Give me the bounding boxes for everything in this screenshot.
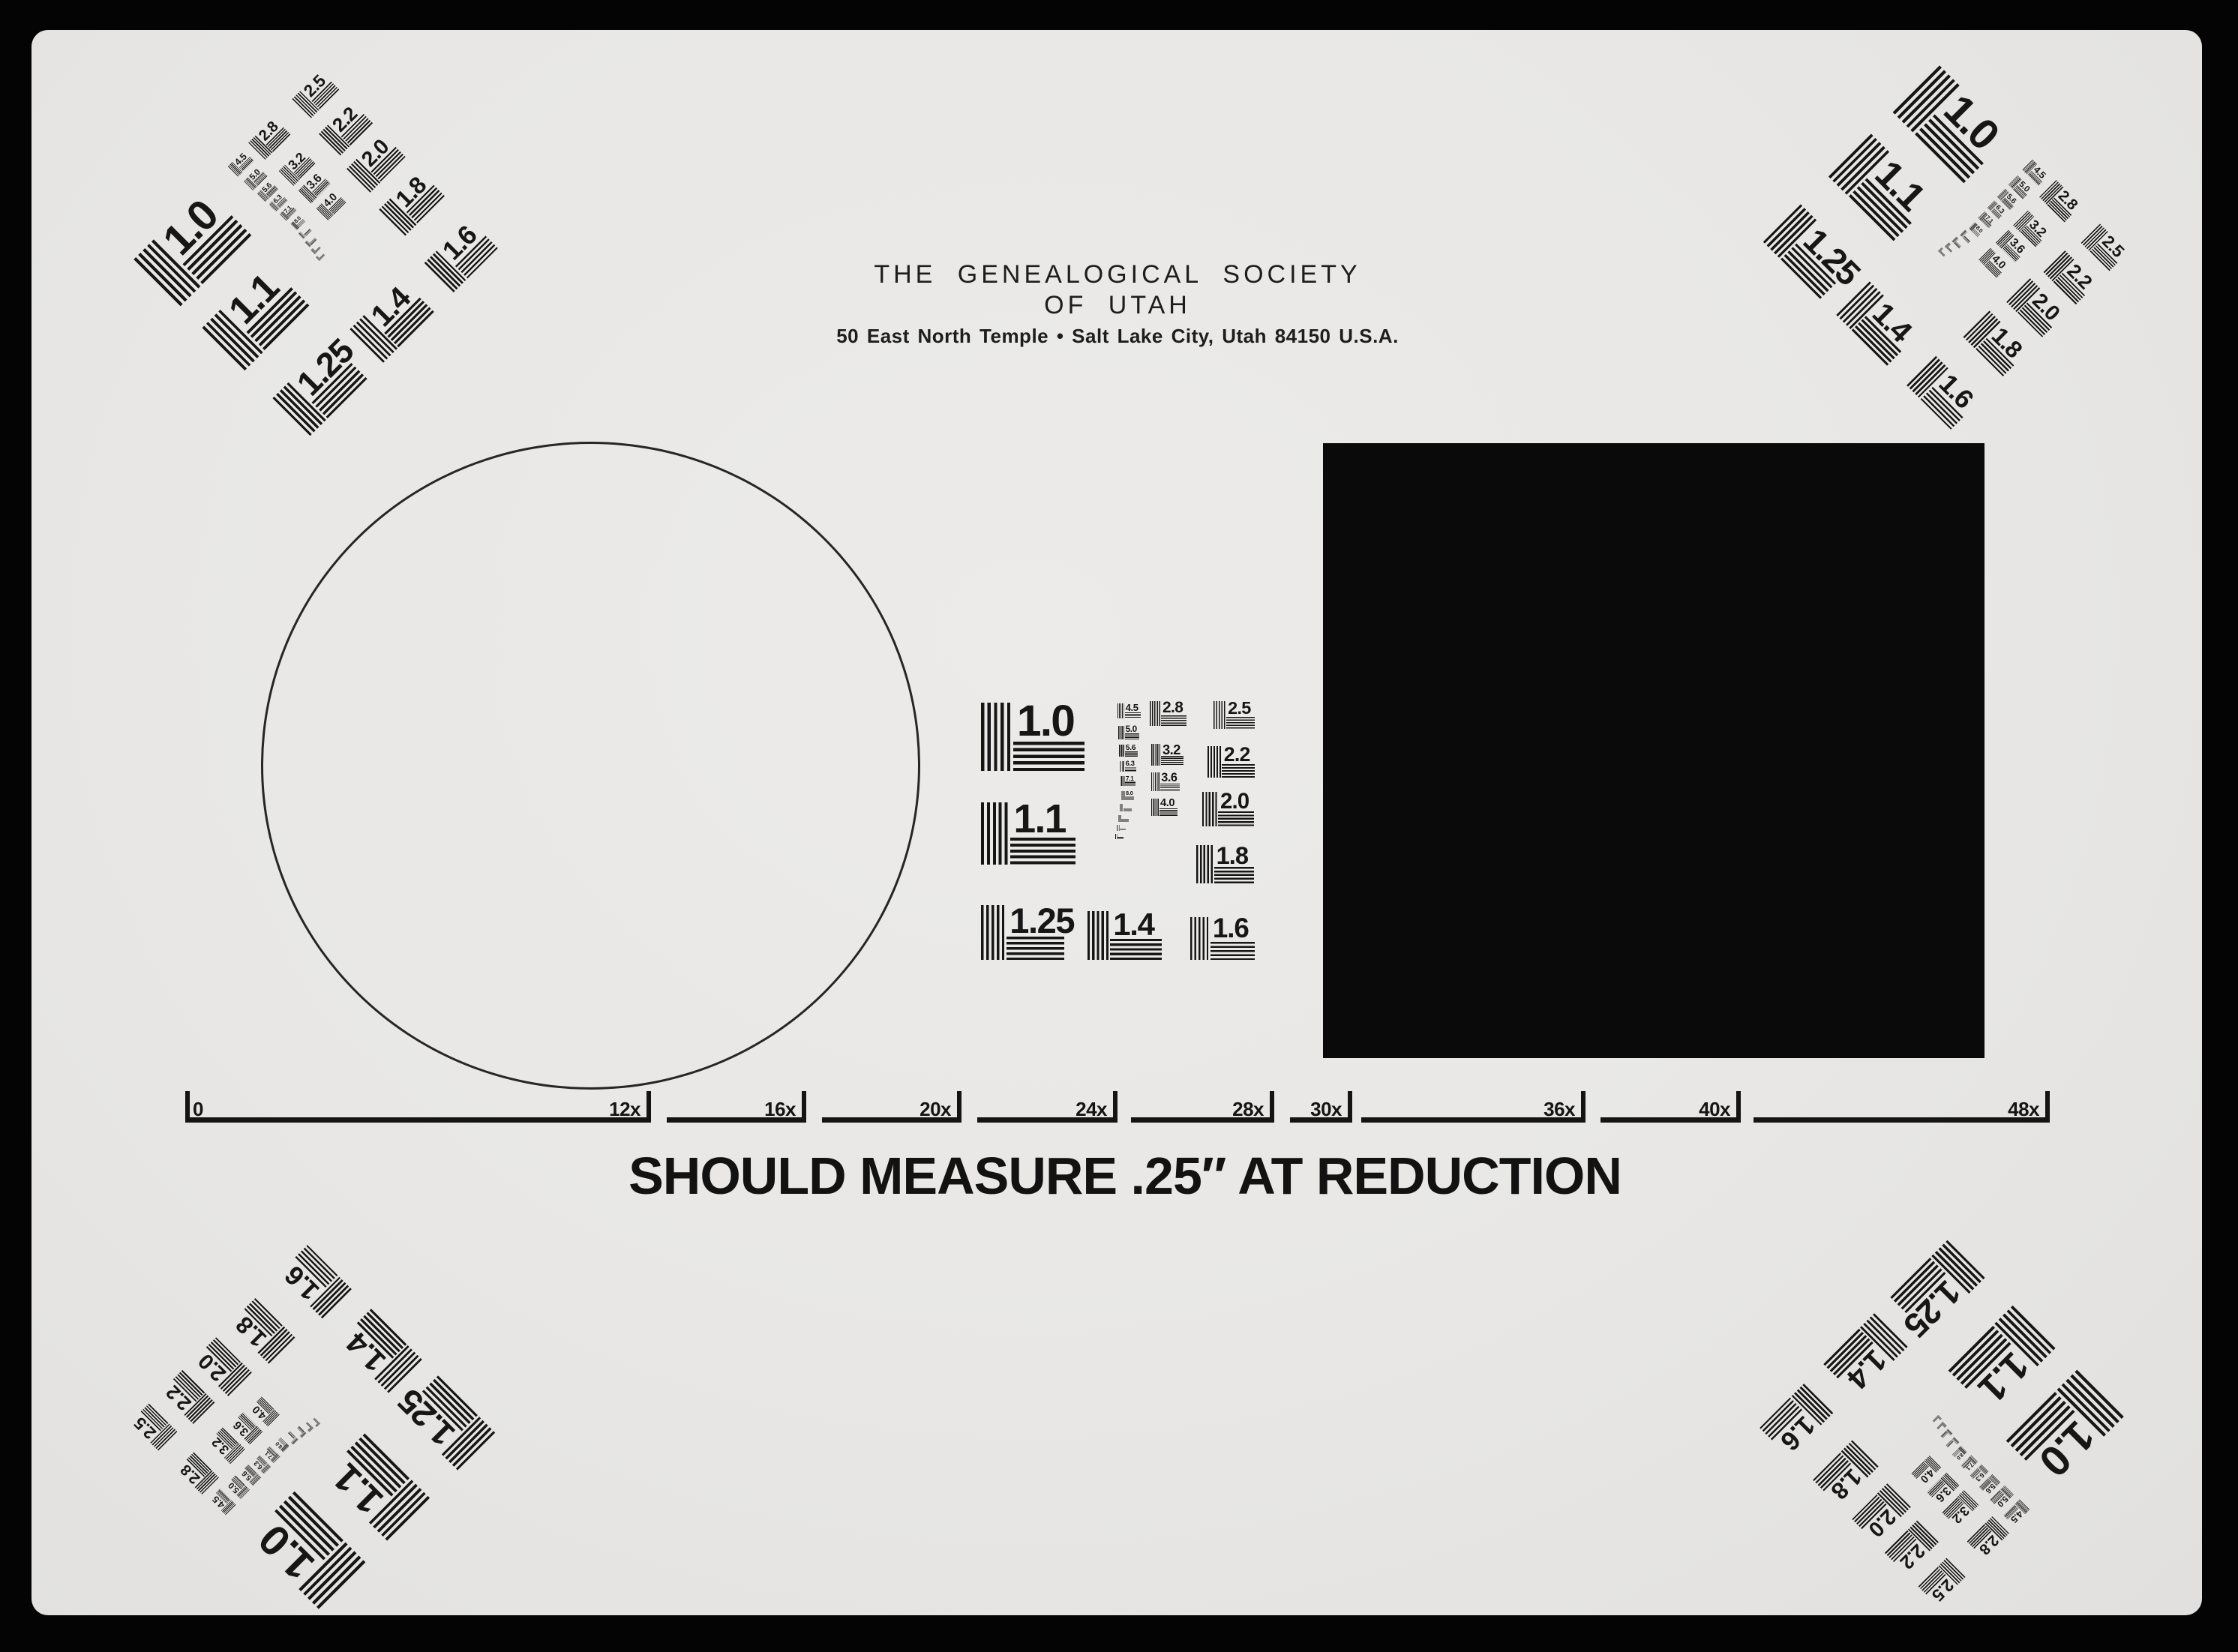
vertical-bars: [1120, 776, 1125, 786]
vertical-bars: [1196, 845, 1213, 883]
header-title-line1: THE GENEALOGICAL SOCIETY: [517, 260, 1717, 289]
header-title-line2: OF UTAH: [517, 291, 1717, 320]
horizontal-bars: [1125, 733, 1139, 739]
element-number-label: 1.25: [1009, 903, 1074, 938]
ruler-label-36x: 36x: [1468, 1099, 1575, 1119]
vertical-bars: [1151, 744, 1160, 766]
element-number-label: 4.5: [1126, 703, 1138, 712]
ruler-label-24x: 24x: [1000, 1099, 1107, 1119]
vertical-bars: [1120, 761, 1124, 772]
horizontal-bars: [305, 1422, 311, 1428]
horizontal-bars: [304, 229, 311, 236]
horizontal-bars: [1125, 767, 1136, 772]
horizontal-bars: [297, 1426, 304, 1432]
ruler-label-30x: 30x: [1235, 1099, 1342, 1119]
ruler-tick: [1736, 1091, 1741, 1123]
vertical-bars: [981, 703, 1010, 771]
ruler-tick: [2045, 1091, 2050, 1123]
horizontal-bars: [1161, 756, 1183, 765]
horizontal-bars: [1117, 837, 1123, 839]
vertical-bars: [1151, 799, 1159, 816]
horizontal-bars: [315, 246, 321, 252]
element-number-label: 5.0: [1126, 725, 1137, 734]
element-number-label: 1.6: [1213, 915, 1249, 943]
vertical-bars: [1119, 745, 1124, 757]
element-number-label: 5.6: [1126, 744, 1136, 752]
vertical-bars: [291, 1437, 298, 1444]
horizontal-bars: [1939, 251, 1945, 256]
scanned-test-target: THE GENEALOGICAL SOCIETY OF UTAH 50 East…: [0, 0, 2238, 1652]
reduction-caption: SHOULD MEASURE .25″ AT REDUCTION: [562, 1146, 1687, 1206]
element-number-label: 8.0: [1126, 790, 1133, 796]
horizontal-bars: [1123, 808, 1132, 811]
horizontal-bars: [1932, 1417, 1937, 1422]
horizontal-bars: [1110, 939, 1161, 960]
ruler-tick: [957, 1091, 961, 1123]
ruler-label-48x: 48x: [1933, 1099, 2039, 1119]
vertical-bars: [1120, 804, 1123, 811]
element-number-label: 1.8: [1216, 844, 1248, 868]
horizontal-bars: [1125, 751, 1138, 757]
horizontal-bars: [1218, 811, 1254, 826]
calibration-circle: [261, 442, 920, 1090]
horizontal-bars: [1936, 1423, 1942, 1429]
horizontal-bars: [1222, 764, 1255, 778]
element-number-label: 4.0: [1160, 798, 1174, 809]
horizontal-bars: [288, 1432, 295, 1439]
horizontal-bars: [1125, 781, 1135, 786]
element-number-label: 1.0: [1017, 700, 1074, 744]
element-number-label: 2.0: [1220, 790, 1249, 812]
ruler-label-12x: 12x: [534, 1099, 640, 1119]
vertical-bars: [1190, 917, 1208, 960]
ruler-tick: [1113, 1091, 1117, 1123]
horizontal-bars: [1963, 235, 1970, 243]
horizontal-bars: [1940, 1431, 1947, 1438]
horizontal-bars: [1159, 808, 1177, 816]
element-number-label: 2.5: [1228, 700, 1251, 717]
test-pattern-center: 1.01.11.251.41.61.82.02.22.52.83.23.64.0…: [981, 697, 1258, 961]
vertical-bars: [1207, 746, 1221, 778]
ruler-tick: [802, 1091, 806, 1123]
horizontal-bars: [1013, 742, 1085, 771]
header-address: 50 East North Temple • Salt Lake City, U…: [517, 325, 1717, 348]
horizontal-bars: [1161, 715, 1186, 726]
horizontal-bars: [1946, 1440, 1954, 1447]
horizontal-bars: [310, 238, 316, 244]
horizontal-bars: [1226, 717, 1255, 729]
ruler-label-0: 0: [193, 1099, 203, 1119]
horizontal-bars: [1954, 241, 1960, 248]
horizontal-bars: [1121, 819, 1129, 822]
density-black-square: [1323, 443, 1984, 1058]
ruler-tick: [646, 1091, 651, 1123]
ruler-tick: [1581, 1091, 1585, 1123]
horizontal-bars: [319, 253, 325, 259]
vertical-bars: [981, 802, 1008, 865]
element-number-label: 2.8: [1162, 700, 1183, 716]
horizontal-bars: [1214, 867, 1254, 883]
horizontal-bars: [1946, 247, 1952, 253]
vertical-bars: [1151, 772, 1159, 791]
vertical-bars: [1117, 703, 1124, 718]
horizontal-bars: [1120, 829, 1126, 832]
element-number-label: 2.2: [1224, 745, 1250, 765]
ruler-label-20x: 20x: [844, 1099, 951, 1119]
ruler-label-40x: 40x: [1624, 1099, 1730, 1119]
horizontal-bars: [1160, 784, 1180, 792]
horizontal-bars: [313, 1417, 318, 1423]
ruler-label-16x: 16x: [689, 1099, 796, 1119]
ruler-tick: [1348, 1091, 1352, 1123]
element-number-label: 3.6: [1161, 772, 1177, 784]
horizontal-bars: [1010, 838, 1075, 865]
element-number-label: 7.1: [1126, 775, 1134, 781]
vertical-bars: [981, 905, 1004, 960]
element-number-label: 6.3: [1126, 760, 1135, 767]
element-number-label: 3.2: [1162, 743, 1180, 757]
vertical-bars: [1150, 701, 1160, 726]
horizontal-bars: [1210, 942, 1255, 960]
vertical-bars: [1118, 726, 1124, 739]
vertical-bars: [1121, 791, 1125, 800]
vertical-bars: [1087, 911, 1108, 960]
horizontal-bars: [1125, 796, 1134, 800]
vertical-bars: [1202, 792, 1217, 826]
element-number-label: 1.4: [1113, 909, 1154, 940]
vertical-bars: [1213, 701, 1225, 729]
element-number-label: 1.1: [1013, 799, 1065, 839]
